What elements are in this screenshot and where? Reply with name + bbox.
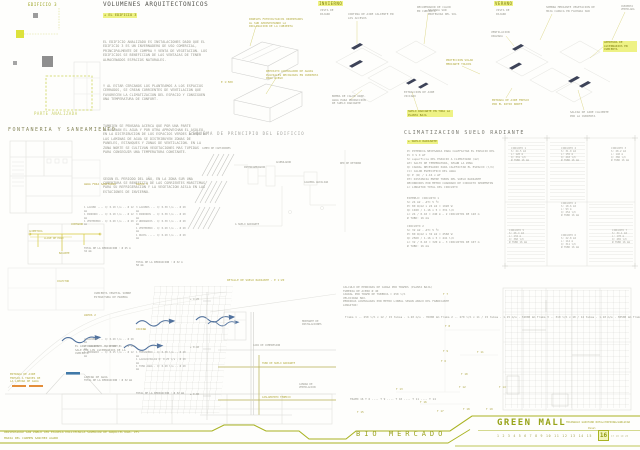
volumes-title: VOLUMENES ARQUITECTONICOS xyxy=(103,1,208,8)
calc-block-rows: 1 LAVABO ···· Q: 0.10 l/s ·· Ø 12 mm 1 I… xyxy=(84,206,134,226)
verano-note-cubierta: CUBIERTA VENTILADA xyxy=(621,5,639,11)
site-plan-drawing xyxy=(13,8,100,110)
tramo-tag: T 13 xyxy=(396,388,403,392)
section-note-cubierta: CUBIERTA VEGETAL SOBRE ESTRUCTURA DE MAD… xyxy=(94,292,142,299)
clima-title: CLIMATIZACION SUELO RADIANTE xyxy=(404,130,525,136)
esquema-label-caldera: CALDERA AUXILIAR xyxy=(304,181,328,184)
calc-block-total: TOTAL DE LA DERIVACION : Ø 25 A 32 mm xyxy=(84,247,134,253)
detail-label-aislamiento: AISLAMIENTO TERMICO xyxy=(262,396,291,399)
paragraph: Y AL ESTAR CERCANOS LOS PLANTEAMOS A LOS… xyxy=(103,84,209,102)
axo-note-panels: PANELES FOTOVOLTAICOS ORIENTADOS AL SUR … xyxy=(249,18,305,29)
invierno-note-suelo-radiante: SUELO RADIANTE EN TODA LA PLANTA BAJA xyxy=(407,110,453,117)
fontaneria-column-a: AGUA FRIA SANITARIA 1 LAVABO ···· Q: 0.1… xyxy=(84,145,134,424)
verano-caption: VISTA DE PAJARO xyxy=(496,9,509,16)
fontaneria-title: FONTANERIA Y SANEAMIENTO xyxy=(8,127,116,133)
tramo-tag: T 14 xyxy=(499,386,506,390)
plan-label-acometida: ACOMETIDA xyxy=(29,230,43,233)
clima-formulas: P= POTENCIA NECESARIA PARA CALEFACTAR EL… xyxy=(407,149,509,189)
room-label: CIRCUITO 4 S: 18.6 m2 L: 93 m Q: 254 l/h… xyxy=(561,202,587,217)
verano-note-fachada: FACHADA SUR PROTEGIDA DEL SOL xyxy=(428,9,462,16)
section-note-entrada: ENTRADA DE AIRE FRESCO A TRAVES DE LA LA… xyxy=(10,373,44,384)
panel-sheet: EDIFICIO 3 PARTE ANALIZADA VOLUMENES ARQ… xyxy=(0,0,640,450)
calc-block-header: ASEOS 1 xyxy=(136,183,186,186)
tramo-tag: T 7 xyxy=(443,293,448,297)
plan-grid-hatch xyxy=(505,290,629,408)
site-plan-label: EDIFICIO 3 xyxy=(28,2,57,7)
calc-block-rows: 1 FREGADERO · Q: 0.30 l/s ·· Ø 20 mm 1 L… xyxy=(136,351,186,371)
level-mark: + 4.20 xyxy=(190,298,199,301)
axo-note-deposito: DEPOSITO ACUMULADOR DE AGUAS PLUVIALES R… xyxy=(266,70,322,81)
calc-block-rows: 3 LAVABOS ··· Q: 0.30 l/s ·· Ø 20 mm 3 I… xyxy=(136,206,186,240)
calc-block-header: COCINA xyxy=(136,328,186,331)
esquema-label-intercambiador: INTERCAMBIADOR xyxy=(244,166,265,169)
detail-title: DETALLE DE SUELO RADIANTE · E 1:20 xyxy=(227,279,284,283)
invierno-note-extraccion: EXTRACCION DE AIRE VICIADO xyxy=(404,91,440,98)
tramo-table-header: CALCULO DE PERDIDAS DE CARGA POR TRAMOS … xyxy=(343,286,478,308)
level-mark: + 0.40 xyxy=(190,346,199,349)
esquema-title: ESQUEMA DE PRINCIPIO DEL EDIFICIO xyxy=(189,131,305,136)
verano-note-lucernarios: APERTURA DE LUCERNARIOS EN CUBIERTA xyxy=(603,41,637,52)
plan-label-bajante: BAJANTE xyxy=(59,252,70,255)
sheet-name: BIO MERCADO xyxy=(356,430,446,438)
tramo-tag: T 16 xyxy=(420,401,427,405)
tramo-tag: T 9 xyxy=(443,350,448,354)
verano-note-toldos: PROTECCION SOLAR MEDIANTE TOLDOS xyxy=(446,59,484,66)
detail-label-montante: MONTANTE DE INSTALACIONES xyxy=(302,320,332,326)
fontaneria-column-b: ASEOS 1 3 LAVABOS ··· Q: 0.30 l/s ·· Ø 2… xyxy=(136,145,186,450)
verano-title: VERANO xyxy=(494,1,513,6)
calc-block-header: ASEOS 2 xyxy=(84,314,134,317)
verano-note-entrada: ENTRADA DE AIRE FRESCO POR EL PATIO NORT… xyxy=(492,99,530,106)
tramo-tag: T 11 xyxy=(477,351,484,355)
section-note-ascension: EL AIRE CALIENTE ASCIENDE Y SALE POR LOS… xyxy=(75,345,127,356)
room-label: CIRCUITO 3 S: 28.2 m2 L: 140 m Q: 386 l/… xyxy=(611,147,637,162)
room-label: CIRCUITO 1 S: 24.5 m2 L: 120 m Q: 331 l/… xyxy=(511,147,537,162)
panel-numbers-after: 17 18 19 20 xyxy=(611,435,628,438)
calc-block: ASEOS 1 3 LAVABOS ··· Q: 0.30 l/s ·· Ø 2… xyxy=(136,164,186,286)
project-subtitle: TRIANGULO GADITANO ROTA+CHIPIONA+SANLUCA… xyxy=(566,421,630,424)
room-label: CIRCUITO 5 S: 26.4 m2 L: 132 m Q: 360 l/… xyxy=(509,229,535,244)
calc-block-total: TOTAL DE LA DERIVACION : Ø 32 A 50 mm xyxy=(136,261,186,267)
esquema-principio-drawing xyxy=(188,150,345,232)
esquema-label-captadores: CAMPO DE CAPTADORES xyxy=(202,147,231,150)
tramo-tag: T 12 xyxy=(459,386,466,390)
tramo-tag: T 6 xyxy=(441,360,446,364)
invierno-title: INVIERNO xyxy=(318,1,343,6)
clima-ejemplo-1: EJEMPLO: CIRCUITO 1 S= 24 m2 · ΔT= 5 ºC … xyxy=(407,196,507,220)
room-label: CIRCUITO 7 S: 34.1 m2 L: 170 m Q: 465 l/… xyxy=(612,229,638,244)
project-title: GREEN MALL xyxy=(497,418,566,428)
invierno-note-cortina: CORTINA DE AIRE CALIENTE EN LOS ACCESOS xyxy=(348,13,396,20)
tramo-tag: T 17 xyxy=(437,410,444,414)
clima-ejemplo-2: CIRCUITO 2 S= 32 m2 · ΔT= 5 ºC P= 80 W/m… xyxy=(407,224,507,248)
tramo-tag: T 8 xyxy=(445,325,450,329)
detail-label-camara: CAMARA DE VENTILACION xyxy=(299,383,329,389)
tramo-tag: T 19 xyxy=(486,408,493,412)
panel-label: Panel xyxy=(588,427,596,430)
verano-axonometric-drawing xyxy=(462,12,625,110)
section-note-lamina: LAMINA DE AGUA xyxy=(84,376,108,380)
room-label: CIRCUITO 2 S: 31.0 m2 L: 155 m Q: 418 l/… xyxy=(561,147,587,162)
esquema-label-retorno: RED DE RETORNO xyxy=(340,162,362,165)
plan-label-colector: COLECTOR xyxy=(57,280,69,283)
esquema-label-suelo: A SUELO RADIANTE xyxy=(235,223,259,226)
verano-note-sombra: SOMBRA MEDIANTE VEGETACION DE HOJA CADUC… xyxy=(546,6,600,13)
detail-label-compresion: CAPA DE COMPRESION xyxy=(253,344,280,347)
credit-line-2: MARIA DEL CARMEN SANCHEZ AGUDO xyxy=(4,437,58,441)
tramo-tag: T 10 xyxy=(461,373,468,377)
calc-block: COCINA 1 FREGADERO · Q: 0.30 l/s ·· Ø 20… xyxy=(136,309,186,414)
tramo-tag: T 18 xyxy=(463,408,470,412)
current-panel-badge: 16 xyxy=(598,430,609,441)
tramo-tag: T 15 xyxy=(357,411,364,415)
calc-block-total: TOTAL DE LA DERIVACION : Ø 32 mm xyxy=(136,392,186,395)
tramo-table-rows: Tramo 1 ·· 250 l/h x 12 / 15 tubos · 1.2… xyxy=(345,315,640,320)
axo-scale-label: E 1:500 xyxy=(221,81,233,85)
room-label: CIRCUITO 6 S: 22.8 m2 L: 114 m Q: 311 l/… xyxy=(561,234,587,249)
invierno-caption: VISTA DE PAJARO xyxy=(320,9,333,16)
volumes-subtitle: + EL EDIFICIO 3 xyxy=(103,13,137,18)
paragraph: EL EDIFICIO ANALIZADO ES INSTALACIONES D… xyxy=(103,40,209,62)
esquema-label-acumulador: ACUMULADOR xyxy=(276,161,291,164)
panel-number-strip: 1 2 3 4 5 6 7 8 9 10 11 12 13 14 15 xyxy=(497,434,592,438)
verano-note-salida: SALIDA DE AIRE CALIENTE POR LA CUBIERTA xyxy=(570,111,610,118)
detail-label-tubo: TUBO DE SUELO RADIANTE xyxy=(262,362,295,365)
clima-subtitle: + SUELO RADIANTE xyxy=(407,140,438,144)
verano-note-cruzada: VENTILACION CRUZADA xyxy=(491,31,521,38)
plan-label-llave: LLAVE DE PASO xyxy=(44,237,64,240)
invierno-note-bomba: BOMBA DE CALOR AIRE-AGUA PARA PRODUCCION… xyxy=(332,95,368,106)
calc-block: RIEGO 4 BOCAS ····· Q: 0.20 l/s ·· Ø 25 … xyxy=(136,437,186,450)
analyzed-part-label: PARTE ANALIZADA xyxy=(34,111,78,116)
plan-label-contador: CONTADOR xyxy=(71,223,83,226)
credit-line-1: UNIVERSIDAD SAN PABLO CEU ESCUELA POLITE… xyxy=(4,431,139,435)
calc-block-header: AGUA FRIA SANITARIA xyxy=(84,183,134,186)
level-mark: ± 0.00 xyxy=(190,393,199,396)
calc-block: AGUA FRIA SANITARIA 1 LAVABO ···· Q: 0.1… xyxy=(84,164,134,272)
